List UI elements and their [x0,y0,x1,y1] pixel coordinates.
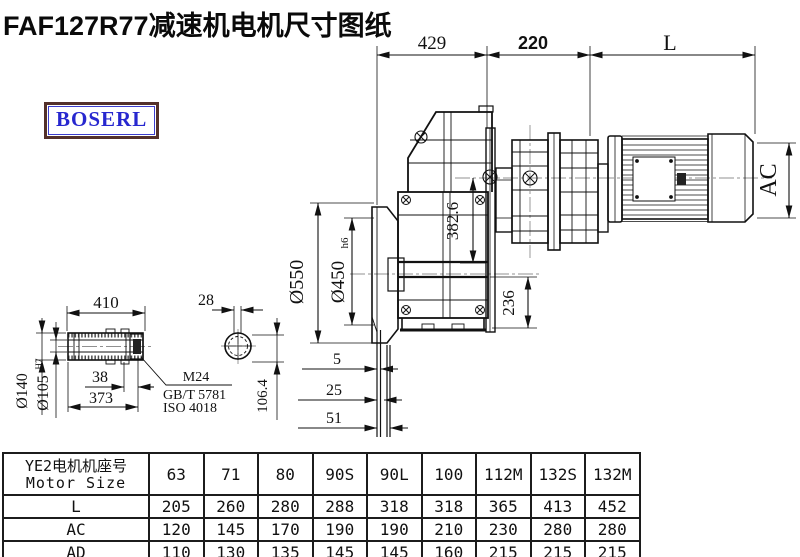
table-cell: 145 [204,518,259,541]
motor-size-table: YE2电机机座号 Motor Size 63 71 80 90S 90L 100… [2,452,641,557]
table-cell: 280 [585,518,640,541]
dimension-drawing: 429 220 L Ø550 Ø450 h6 382.6 236 AC 410 … [0,0,800,450]
row-label: L [3,495,149,518]
dim-dia105-tol: H7 [34,358,44,369]
table-cell: 288 [313,495,368,518]
table-cell: 145 [313,541,368,557]
table-cell: 365 [476,495,531,518]
table-cell: 318 [367,495,422,518]
dim-236: 236 [499,290,518,316]
dim-L: L [663,30,676,55]
page-title: FAF127R77减速机电机尺寸图纸 [3,4,392,43]
housing-upper [408,106,493,192]
table-row-AD: AD 110 130 135 145 145 160 215 215 215 [3,541,640,557]
brand-logo: BOSERL [44,102,159,139]
size-col: 80 [258,453,313,495]
table-cell: 280 [531,518,586,541]
label-iso: ISO 4018 [163,401,217,416]
size-col: 90L [367,453,422,495]
table-cell: 130 [204,541,259,557]
dim-dia550: Ø550 [286,260,308,304]
dim-373: 373 [89,390,113,407]
dim-dia105: Ø105 [35,375,52,411]
table-cell: 170 [258,518,313,541]
table-cell: 260 [204,495,259,518]
size-col: 100 [422,453,477,495]
dim-28: 28 [198,292,214,309]
table-cell: 318 [422,495,477,518]
table-row-L: L 205 260 280 288 318 318 365 413 452 [3,495,640,518]
dim-dia450-tol: h6 [339,237,351,249]
table-cell: 190 [313,518,368,541]
table-cell: 413 [531,495,586,518]
table-cell: 190 [367,518,422,541]
mounting-wall [372,317,390,437]
table-cell: 205 [149,495,204,518]
table-cell: 215 [476,541,531,557]
dim-dia450: Ø450 [328,261,349,303]
brand-logo-text: BOSERL [48,106,155,135]
size-col: 112M [476,453,531,495]
shaft-section-view [224,332,252,360]
table-cell: 135 [258,541,313,557]
table-cell: 110 [149,541,204,557]
bolt-icon [415,131,427,143]
dim-dia140: Ø140 [14,373,31,409]
row-label: AC [3,518,149,541]
size-col: 63 [149,453,204,495]
header-en: Motor Size [4,475,148,492]
table-row-AC: AC 120 145 170 190 190 210 230 280 280 [3,518,640,541]
dim-220: 220 [518,33,548,53]
dim-AC: AC [756,163,782,196]
table-header-row: YE2电机机座号 Motor Size 63 71 80 90S 90L 100… [3,453,640,495]
motor-panel [633,157,675,201]
table-cell: 210 [422,518,477,541]
row-label: AD [3,541,149,557]
table-cell: 215 [585,541,640,557]
gearbox-main-view [372,106,497,437]
drawing-sheet: 429 220 L Ø550 Ø450 h6 382.6 236 AC 410 … [0,0,800,557]
table-cell: 215 [531,541,586,557]
table-header-motor-size: YE2电机机座号 Motor Size [3,453,149,495]
label-m24: M24 [183,370,209,385]
input-gear-unit [496,133,608,250]
retaining-bolt [133,339,141,354]
dim-410: 410 [93,293,119,312]
size-col: 132M [585,453,640,495]
dim-106-4: 106.4 [255,379,271,413]
size-col: 71 [204,453,259,495]
table-cell: 452 [585,495,640,518]
table-cell: 280 [258,495,313,518]
dim-38: 38 [92,369,108,386]
table-cell: 145 [367,541,422,557]
table-cell: 230 [476,518,531,541]
dim-382-6: 382.6 [443,202,462,240]
housing-cover [483,128,497,332]
dim-429: 429 [418,33,447,54]
output-flange [372,207,398,343]
terminal-box [677,173,686,185]
size-col: 132S [531,453,586,495]
table-cell: 120 [149,518,204,541]
mounting-feet [402,318,484,330]
header-cn: YE2电机机座号 [4,457,148,475]
dim-51: 51 [326,410,342,427]
size-col: 90S [313,453,368,495]
dim-25: 25 [326,382,342,399]
table-cell: 160 [422,541,477,557]
dim-5: 5 [333,351,341,368]
